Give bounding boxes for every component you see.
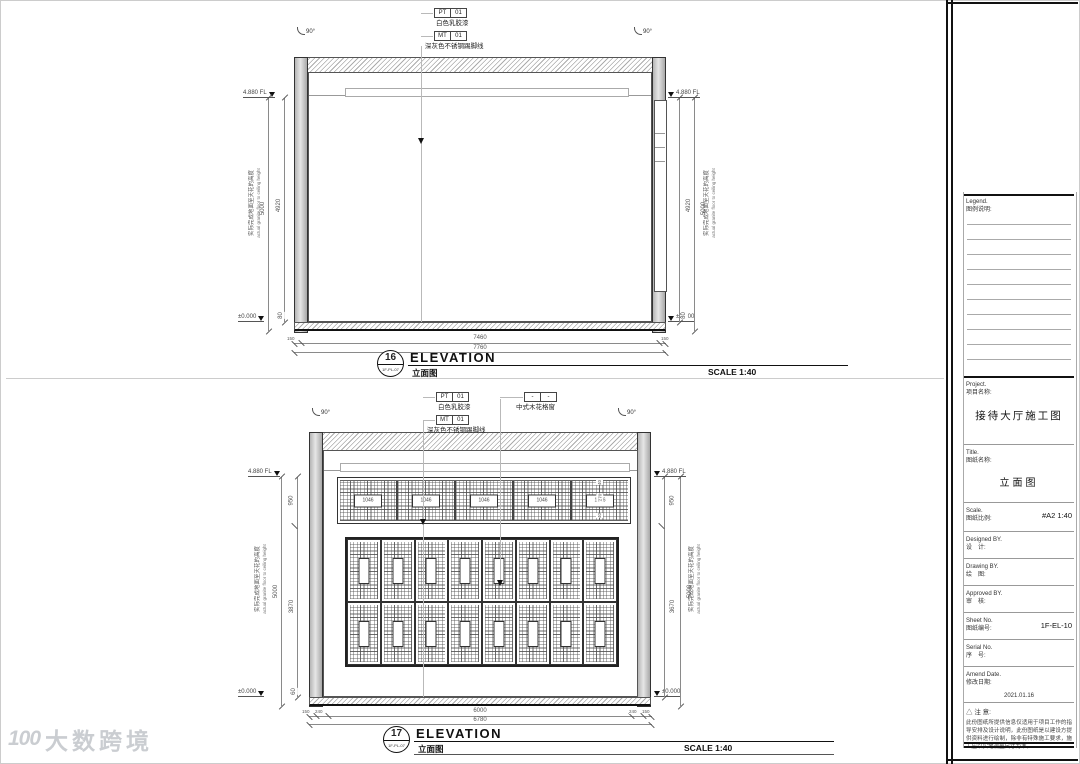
e16-leader-arrow [418, 138, 424, 144]
dim-value: 40 [596, 513, 603, 518]
panel-core [426, 621, 437, 647]
lattice-panel [482, 539, 516, 602]
e16-dim-total-right [694, 98, 695, 331]
e17-tag-pt: PT01 [436, 392, 469, 402]
legend-row [967, 344, 1071, 345]
e17-lattice-screen [345, 537, 619, 667]
tb-rule [964, 376, 1074, 378]
e17-ceiling-coffer [340, 463, 630, 472]
project-label-en: Project. [966, 381, 1072, 389]
e17-tag-stub-1 [423, 397, 435, 398]
e16-side-note-right: 实际完成地面至天花的高度actual granite floor to ceil… [704, 138, 716, 268]
tb-rule [964, 585, 1074, 586]
legend-row [967, 329, 1071, 330]
e17-tag-stub-2 [423, 420, 435, 421]
dim-value: 5000 [260, 202, 267, 215]
arc-icon [312, 408, 320, 416]
dim-value: 3670 [670, 600, 677, 613]
e17-tag-stub-3 [500, 397, 523, 398]
dim-value: 7460 [450, 335, 510, 342]
frieze-panel: 1046 [398, 481, 456, 520]
tb-rule [964, 746, 1074, 748]
tag-num: 01 [452, 393, 468, 401]
titleblock-bottom-bar [946, 759, 1078, 761]
legend-label-cn: 图例说明: [966, 206, 1072, 214]
legend-row [967, 239, 1071, 240]
dim-value: 3870 [289, 600, 296, 613]
dim-value: 240 [629, 709, 637, 714]
dim-value: 80 [278, 312, 285, 319]
e17-level-bottom-left: ±0.000 [238, 688, 264, 697]
tb-rule [964, 639, 1074, 640]
scale-label-en: Scale. [966, 507, 992, 515]
e16-tag-mt: MT01 [434, 31, 467, 41]
level-value: 4.880 FL [243, 89, 267, 97]
tag-code: PT [435, 9, 450, 17]
lattice-panel [516, 602, 550, 665]
tb-note-section: △ 注 意: 此份图纸所提供信息仅适用于项目工作的指导安排及设计说明，此份图纸是… [966, 706, 1072, 751]
tb-rule [964, 666, 1074, 667]
panel-core [561, 558, 572, 584]
e16-ann-skirting: 深灰色不锈钢踢脚线 [425, 43, 484, 51]
e16-title: ELEVATION [410, 350, 496, 365]
e17-side-note-left: 实际完成地面至天花的高度actual granite floor to ceil… [255, 514, 267, 644]
tb-project-section: Project. 项目名称: 接待大厅施工图 [966, 381, 1072, 423]
drawing-label-cn: 绘 图: [966, 571, 1072, 579]
designed-label-en: Designed BY. [966, 536, 1072, 544]
tag-num: 01 [450, 32, 466, 40]
legend-label-en: Legend. [966, 198, 1072, 206]
e17-left-wall-column [309, 432, 323, 707]
e17-scale: SCALE 1:40 [684, 743, 732, 753]
frieze-dim: 1046 [528, 494, 556, 507]
e17-ann-skirting: 深灰色不锈钢踢脚线 [427, 427, 486, 435]
e17-side-note-right: 实际完成地面至天花的高度actual granite floor to ceil… [689, 514, 701, 644]
dim-value: 950 [670, 495, 677, 505]
sheet-label-en: Sheet No. [966, 617, 993, 625]
panel-core [595, 621, 606, 647]
dim-value: 270 [596, 494, 603, 502]
arc-icon [297, 27, 305, 35]
side-note-en: actual granite floor to ceiling height [711, 138, 717, 268]
e16-dim-total-left [268, 98, 269, 331]
view-number: 17 [384, 727, 409, 741]
e16-view-bubble: 161F-PL-07 [377, 350, 404, 377]
tb-rule [964, 612, 1074, 613]
e17-title: ELEVATION [416, 726, 502, 741]
dim-value: 4920 [686, 199, 693, 212]
tb-rule [964, 444, 1074, 445]
lattice-panel [347, 602, 381, 665]
legend-row [967, 299, 1071, 300]
tb-rule [964, 194, 1074, 196]
dim-value: 60 [291, 688, 298, 695]
e16-jamb-line-1 [655, 133, 665, 134]
level-triangle-icon [274, 471, 280, 476]
e17-tag-mt: MT01 [436, 415, 469, 425]
dim-value: 40 [596, 480, 603, 485]
e16-level-bottom-left: ±0.000 [238, 313, 264, 322]
amend-date: 2021.01.16 [966, 693, 1072, 699]
tag-num: - [540, 393, 556, 401]
e16-tag-stub-2 [421, 36, 433, 37]
legend-row [967, 269, 1071, 270]
panel-core [527, 621, 538, 647]
legend-row [967, 359, 1071, 360]
titleblock-border-line-1 [946, 0, 948, 764]
panel-core [392, 558, 403, 584]
e16-tag-stub-1 [421, 13, 433, 14]
panel-core [460, 621, 471, 647]
tb-sheet-section: Sheet No. 图纸编号: 1F-EL-10 [966, 617, 1072, 633]
tb-rule [964, 531, 1074, 532]
e17-dim-bottom-2 [309, 724, 652, 725]
lattice-panel [415, 539, 449, 602]
note-header: △ 注 意: [966, 706, 1072, 716]
e16-dim-height-right [679, 98, 680, 322]
tb-designed-section: Designed BY. 设 计: [966, 536, 1072, 552]
e17-leader-arrow-2 [497, 580, 503, 586]
panel-core [426, 558, 437, 584]
e16-angle-right: 90° [634, 27, 652, 36]
e16-left-wall-column [294, 57, 308, 333]
lattice-panel [381, 602, 415, 665]
panel-core [460, 558, 471, 584]
lattice-panel [583, 539, 617, 602]
scale-value: #A2 1:40 [1042, 511, 1072, 520]
legend-row [967, 224, 1071, 225]
sheet-label-cn: 图纸编号: [966, 625, 993, 633]
level-triangle-icon [654, 471, 660, 476]
e17-dim-total-right [680, 477, 681, 706]
titleblock-top-bar [946, 2, 1078, 4]
level-value: ±0.000 [238, 688, 256, 696]
e16-ceiling-coffer [345, 88, 629, 97]
e17-floor-band [309, 697, 651, 706]
arc-icon [634, 27, 642, 35]
serial-label-en: Serial No. [966, 644, 1072, 652]
level-triangle-icon [258, 691, 264, 696]
e17-ann-lattice: 中式木花格窗 [516, 404, 555, 412]
e16-ann-paint: 白色乳胶漆 [436, 20, 469, 28]
tag-num: 01 [450, 9, 466, 17]
lattice-panel [550, 539, 584, 602]
lattice-panel [448, 539, 482, 602]
e17-leader-arrow-1 [420, 519, 426, 525]
tb-rule [964, 502, 1074, 503]
lattice-panel [448, 602, 482, 665]
level-triangle-icon [654, 691, 660, 696]
tb-serial-section: Serial No. 序 号: [966, 644, 1072, 660]
e16-centerline [421, 46, 422, 322]
panel-core [358, 621, 369, 647]
amend-label-en: Amend Date. [966, 671, 1072, 679]
title-label-en: Title. [966, 449, 1072, 457]
tb-amend-section: Amend Date. 修改日期: 2021.01.16 [966, 671, 1072, 699]
angle-label: 90° [306, 29, 315, 35]
drawing-title: 立面图 [966, 474, 1072, 489]
tag-code: - [525, 393, 540, 401]
view-ref: 1F-PL-07 [384, 741, 409, 750]
side-note-en: actual granite floor to ceiling height [262, 514, 268, 644]
project-label-cn: 项目名称: [966, 389, 1072, 397]
level-triangle-icon [258, 316, 264, 321]
tb-drawing-section: Drawing BY. 绘 图: [966, 563, 1072, 579]
tag-code: MT [437, 416, 452, 424]
sheet-number: 1F-EL-10 [1041, 621, 1072, 630]
dim-value: 6780 [450, 717, 510, 724]
titleblock-border-line-2 [951, 0, 953, 764]
dim-value: 150 [661, 336, 669, 341]
e16-angle-left: 90° [297, 27, 315, 36]
e17-centerline-1 [423, 420, 424, 697]
e16-ceiling-hatch-band [295, 57, 665, 73]
e16-tag-pt: PT01 [434, 8, 467, 18]
frieze-panel: 1046 [340, 481, 398, 520]
lattice-panel [381, 539, 415, 602]
frieze-dim: 1046 [412, 494, 440, 507]
tag-code: PT [437, 393, 452, 401]
e17-lattice-frieze: 1046 1046 1046 1046 1046 [337, 477, 631, 524]
lattice-panel [550, 602, 584, 665]
tb-legend-header: Legend. 图例说明: [966, 198, 1072, 214]
e17-tag-lattice: -- [524, 392, 557, 402]
tb-approved-section: Approved BY. 审 核: [966, 590, 1072, 606]
scale-labels: Scale. 图纸比例: [966, 507, 992, 523]
tb-scale-section: Scale. 图纸比例: #A2 1:40 [966, 507, 1072, 523]
e16-dim-height-left [284, 98, 285, 322]
dim-value: 80 [681, 312, 688, 319]
frieze-dim: 1046 [354, 494, 382, 507]
level-triangle-icon [668, 316, 674, 321]
dim-value: 150 [302, 709, 310, 714]
legend-row [967, 254, 1071, 255]
watermark-logo: 100 [8, 727, 40, 751]
project-name: 接待大厅施工图 [966, 408, 1072, 423]
e17-angle-left: 90° [312, 408, 330, 417]
designed-label-cn: 设 计: [966, 544, 1072, 552]
panel-core [595, 558, 606, 584]
e16-scale: SCALE 1:40 [708, 367, 756, 377]
e16-jamb-line-3 [655, 161, 665, 162]
e16-door-jamb-detail [654, 100, 667, 292]
warning-triangle-icon: △ [966, 709, 973, 716]
legend-row [967, 314, 1071, 315]
e17-ann-paint: 白色乳胶漆 [438, 404, 471, 412]
view-number: 16 [378, 351, 403, 365]
e17-dim-chain-left [297, 477, 298, 697]
e17-angle-right: 90° [618, 408, 636, 417]
tb-rule [964, 558, 1074, 559]
panel-core [493, 621, 504, 647]
lattice-panel [415, 602, 449, 665]
angle-label: 90° [321, 410, 330, 416]
approved-label-cn: 审 核: [966, 598, 1072, 606]
dim-value: 5000 [273, 585, 280, 598]
lattice-panel [482, 602, 516, 665]
e17-level-top-left: 4.880 FL [248, 468, 280, 477]
side-note-en: actual granite floor to ceiling height [696, 514, 702, 644]
sheet-labels: Sheet No. 图纸编号: [966, 617, 993, 633]
level-triangle-icon [668, 92, 674, 97]
e16-floor-band [294, 322, 666, 331]
view-divider [6, 378, 944, 379]
note-title: 注 意: [974, 709, 991, 716]
approved-label-en: Approved BY. [966, 590, 1072, 598]
drawing-label-en: Drawing BY. [966, 563, 1072, 571]
dim-value: 950 [289, 495, 296, 505]
e17-dim-total-left [281, 477, 282, 706]
dim-value: 150 [287, 336, 295, 341]
tag-num: 01 [452, 416, 468, 424]
watermark-text: 大数跨境 [45, 722, 153, 756]
view-ref: 1F-PL-07 [378, 365, 403, 374]
dim-value: 6000 [450, 708, 510, 715]
drawing-sheet: PT01 白色乳胶漆 MT01 深灰色不锈钢踢脚线 90° 90° 4.880 … [0, 0, 1080, 764]
level-value: 4.880 FL [248, 468, 272, 476]
e16-wall-face [308, 72, 652, 322]
tag-code: MT [435, 32, 450, 40]
e17-view-bubble: 171F-PL-07 [383, 726, 410, 753]
tb-title-section: Title. 图纸名称: 立面图 [966, 449, 1072, 489]
panel-core [392, 621, 403, 647]
panel-core [358, 558, 369, 584]
frieze-panel: 1046 [456, 481, 514, 520]
lattice-panel [583, 602, 617, 665]
frieze-panel: 1046 [514, 481, 572, 520]
level-value: ±0.000 [238, 313, 256, 321]
panel-core [561, 621, 572, 647]
side-note-en: actual granite floor to ceiling height [256, 138, 262, 268]
e17-title-cn: 立面图 [418, 743, 444, 755]
title-label-cn: 图纸名称: [966, 457, 1072, 465]
dim-value: 150 [642, 709, 650, 714]
amend-label-cn: 修改日期: [966, 679, 1072, 687]
legend-row [967, 284, 1071, 285]
tb-rule [964, 702, 1074, 703]
dim-value: 4920 [276, 199, 283, 212]
lattice-panel [516, 539, 550, 602]
e17-dim-chain-right [664, 477, 665, 697]
watermark: 100 大数跨境 [8, 722, 153, 756]
e17-right-wall-column [637, 432, 651, 707]
e16-jamb-line-2 [655, 147, 665, 148]
arc-icon [618, 408, 626, 416]
scale-label-cn: 图纸比例: [966, 515, 992, 523]
lattice-panel [347, 539, 381, 602]
angle-label: 90° [627, 410, 636, 416]
e16-side-note-left: 实际完成地面至天花的高度actual granite floor to ceil… [249, 138, 261, 268]
dim-value: 240 [315, 709, 323, 714]
angle-label: 90° [643, 29, 652, 35]
serial-label-cn: 序 号: [966, 652, 1072, 660]
e17-centerline-2 [500, 399, 501, 585]
frieze-row: 1046 1046 1046 1046 1046 [340, 480, 628, 521]
frieze-dim: 1046 [470, 494, 498, 507]
tb-rule [964, 742, 1074, 744]
panel-core [527, 558, 538, 584]
e17-subtitle-row: 立面图 SCALE 1:40 [414, 742, 834, 755]
